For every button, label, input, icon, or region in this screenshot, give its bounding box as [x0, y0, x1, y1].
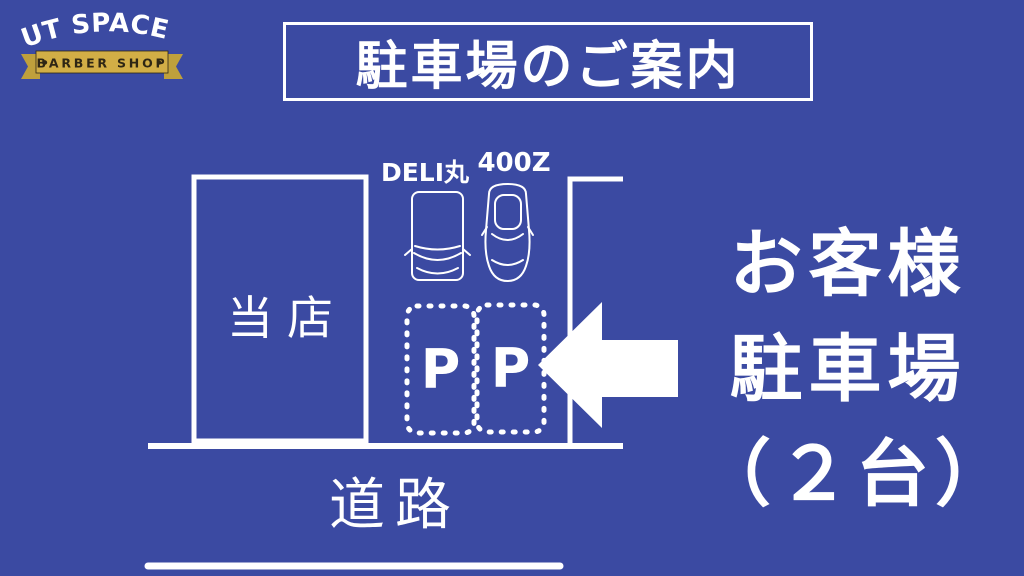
van-icon: [405, 192, 470, 280]
parking-guide-poster: CUT SPACE K BARBER SHOP 駐車場のご案内: [0, 0, 1024, 576]
road-label: 道路: [298, 460, 482, 541]
callout-line-2: 駐車場: [698, 317, 998, 422]
customer-parking-callout: お客様 駐車場 （２台）: [698, 212, 998, 527]
left-arrow-icon: [538, 302, 678, 428]
callout-line-1: お客様: [698, 212, 998, 317]
van-label: DELI丸: [374, 153, 476, 189]
callout-line-3: （２台）: [698, 422, 998, 527]
sports-car-icon: [482, 184, 533, 281]
parking-spot-2-label: P: [477, 305, 544, 432]
shop-label: 当店: [194, 282, 366, 348]
parking-spot-1-label: P: [407, 306, 474, 433]
car-label: 400Z: [468, 148, 560, 178]
